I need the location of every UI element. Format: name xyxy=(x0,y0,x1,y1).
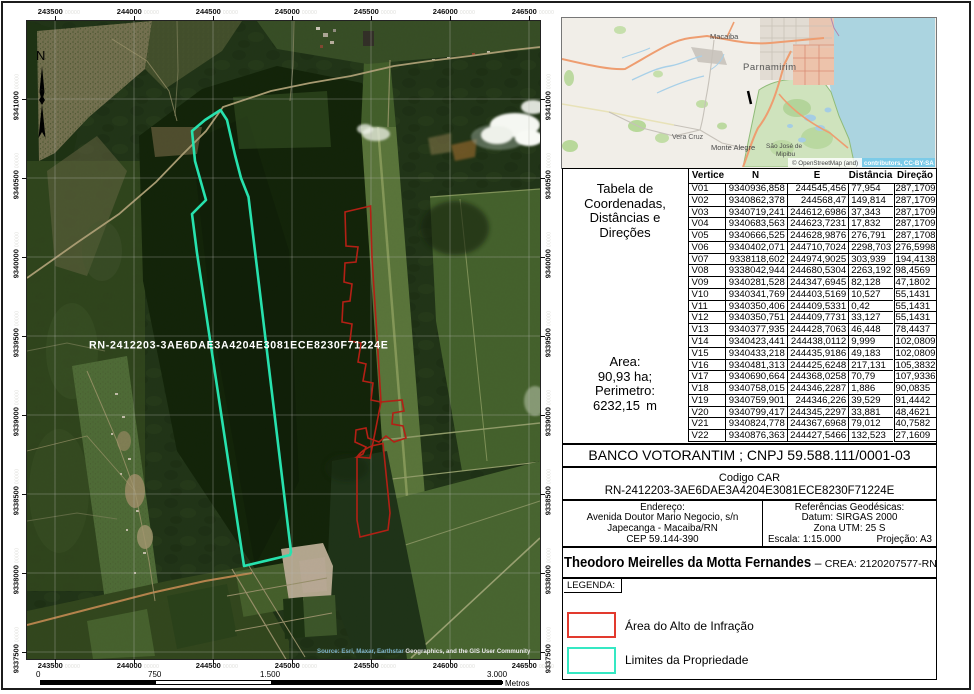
svg-text:Source: Esri, Maxar, Earthstar: Source: Esri, Maxar, Earthstar Geographi… xyxy=(317,648,531,655)
svg-text:Mipibu: Mipibu xyxy=(776,151,796,158)
svg-text:contributors, CC-BY-SA: contributors, CC-BY-SA xyxy=(864,160,934,167)
svg-text:Parnamirim: Parnamirim xyxy=(743,62,797,73)
svg-text:Vera Cruz: Vera Cruz xyxy=(672,134,704,141)
svg-text:Monte Alegre: Monte Alegre xyxy=(711,143,755,152)
svg-text:Macaiba: Macaiba xyxy=(710,32,739,41)
svg-text:© OpenStreetMap (and): © OpenStreetMap (and) xyxy=(792,160,858,167)
svg-text:São José de: São José de xyxy=(766,143,803,150)
svg-text:RN-2412203-3AE6DAE3A4204E3081E: RN-2412203-3AE6DAE3A4204E3081ECE8230F712… xyxy=(89,340,389,352)
